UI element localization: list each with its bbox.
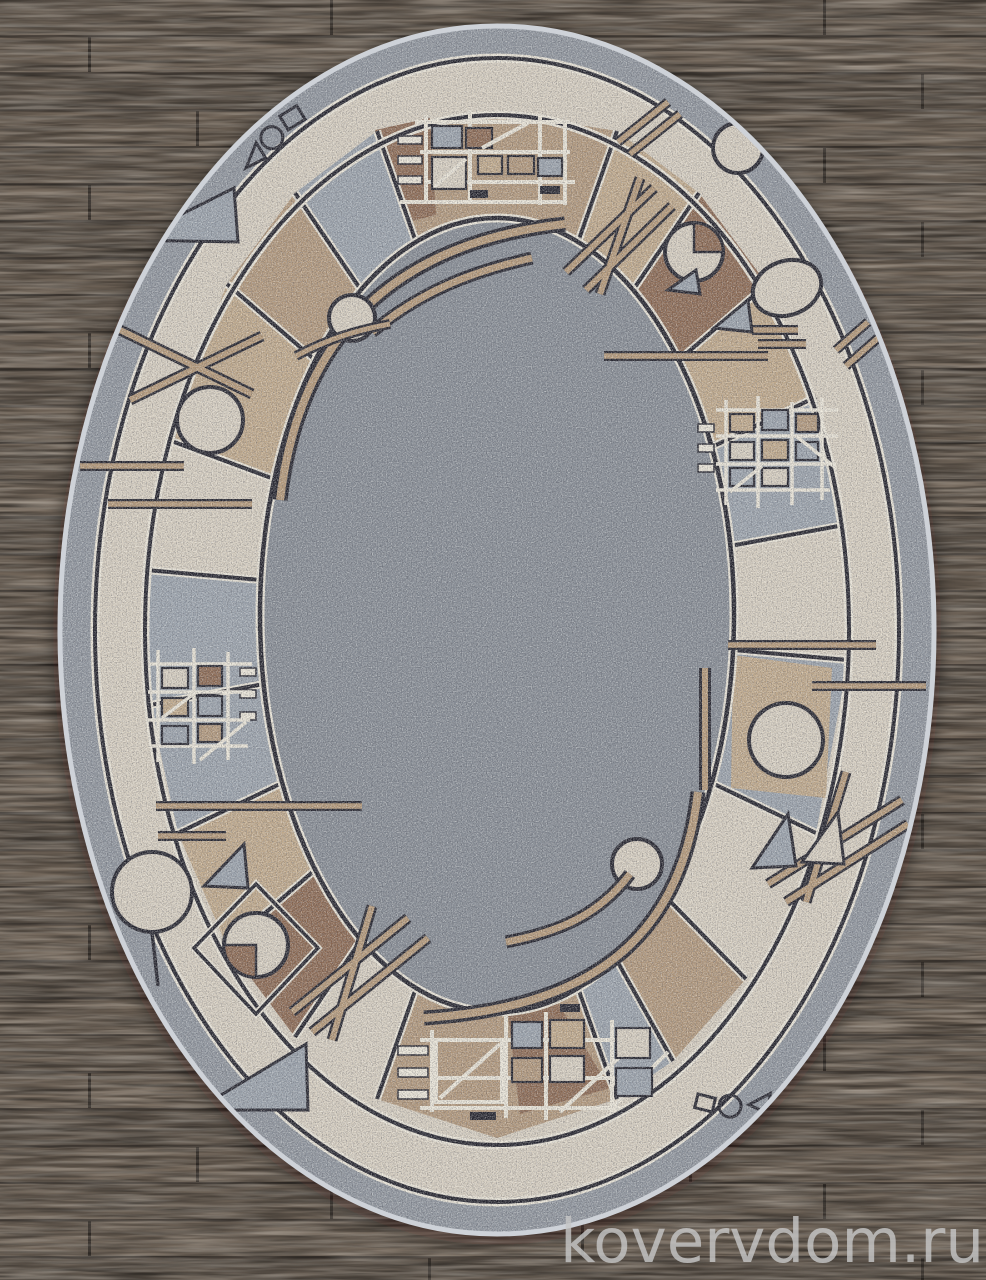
rug-photo-svg xyxy=(0,0,986,1280)
watermark: kovervdom.ru xyxy=(560,1211,984,1272)
product-photo: kovervdom.ru xyxy=(0,0,986,1280)
